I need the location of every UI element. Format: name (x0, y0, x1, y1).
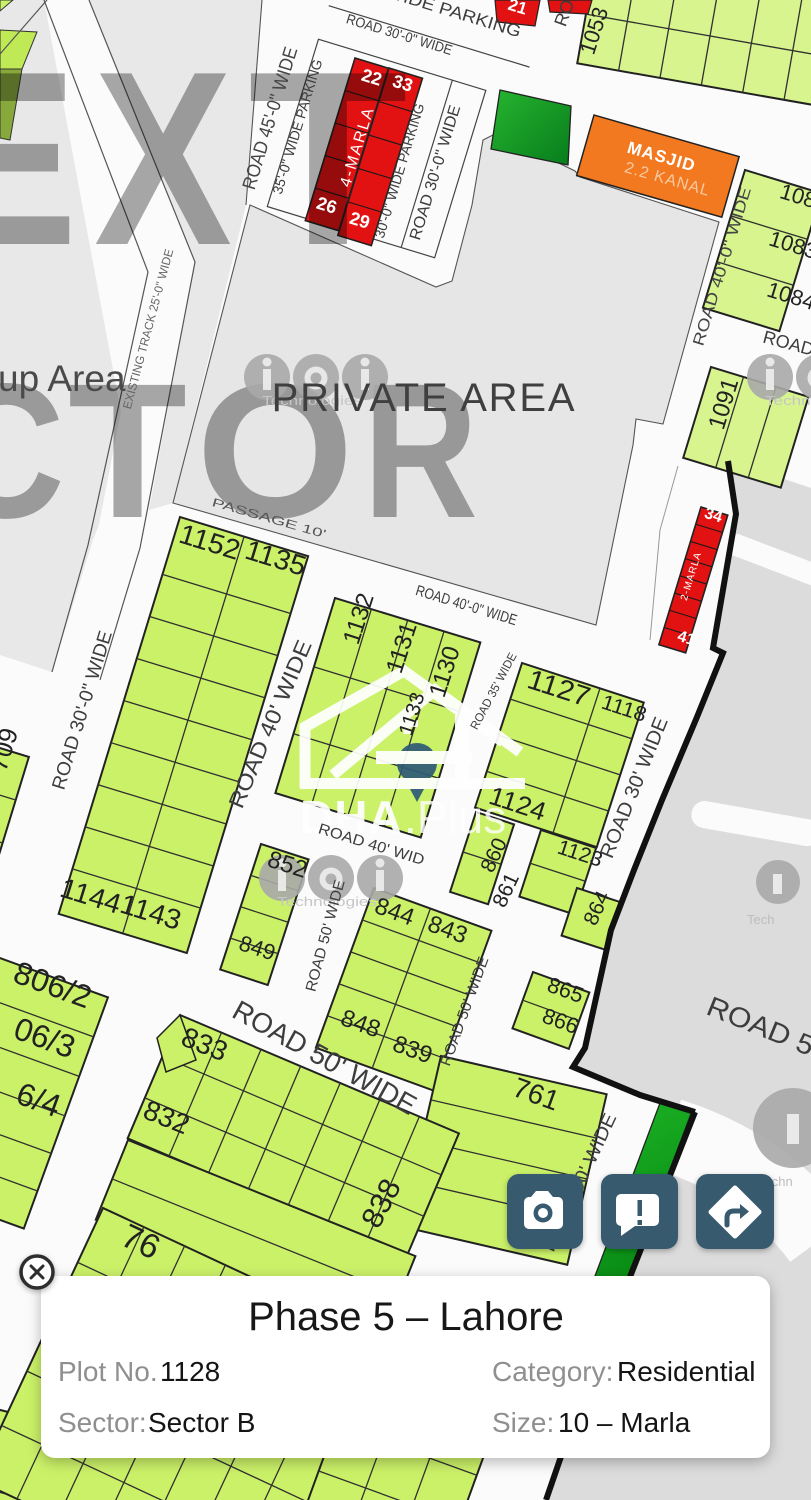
svg-text:T: T (248, 19, 408, 297)
svg-text:Technologies: Technologies (765, 393, 811, 408)
svg-text:Size:: Size: (492, 1407, 554, 1438)
svg-text:PRIVATE AREA: PRIVATE AREA (272, 376, 577, 420)
svg-text:10 – Marla: 10 – Marla (558, 1407, 691, 1438)
svg-text:Residential: Residential (617, 1356, 756, 1387)
svg-text:Tech: Tech (747, 912, 774, 927)
svg-text:Sector:: Sector: (58, 1407, 147, 1438)
svg-text:Plot No.: Plot No. (58, 1356, 158, 1387)
svg-text:1128: 1128 (160, 1356, 220, 1387)
svg-text:E: E (0, 19, 78, 297)
svg-text:Phase 5 – Lahore: Phase 5 – Lahore (248, 1295, 564, 1339)
svg-text:up Area: up Area (0, 358, 126, 399)
svg-text:Sector B: Sector B (148, 1407, 255, 1438)
svg-text:Category:: Category: (492, 1356, 613, 1387)
